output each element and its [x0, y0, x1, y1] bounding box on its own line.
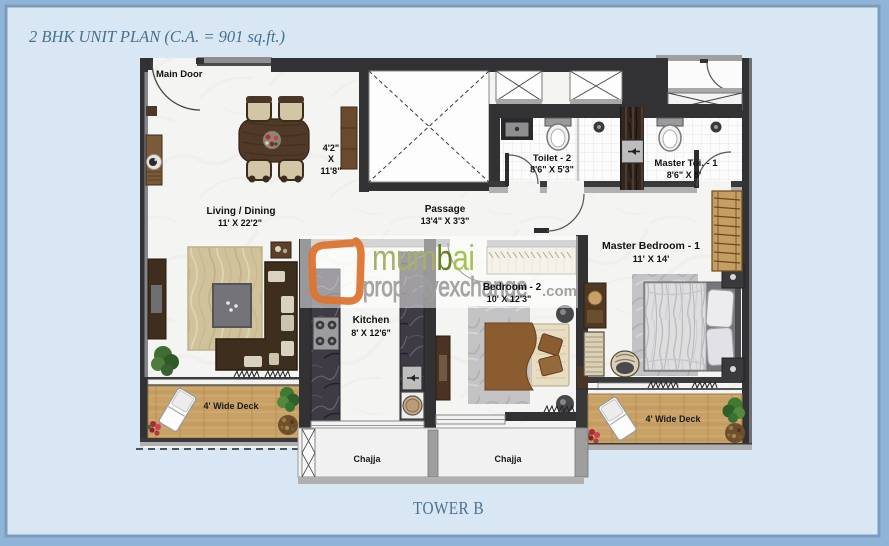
svg-text:4'2": 4'2": [323, 143, 339, 153]
svg-text:Kitchen: Kitchen: [353, 315, 390, 326]
svg-text:Passage: Passage: [425, 204, 466, 215]
svg-text:11'8": 11'8": [321, 166, 342, 176]
svg-text:8'6" X 5'3": 8'6" X 5'3": [530, 165, 574, 175]
svg-text:13'4" X 3'3": 13'4" X 3'3": [421, 216, 470, 226]
svg-text:4' Wide Deck: 4' Wide Deck: [645, 414, 701, 424]
svg-text:Living / Dining: Living / Dining: [207, 206, 276, 217]
svg-text:.com: .com: [542, 283, 577, 300]
svg-text:Master Toi. - 1: Master Toi. - 1: [654, 158, 718, 169]
svg-text:Chajja: Chajja: [494, 454, 522, 464]
svg-text:TOWER B: TOWER B: [413, 498, 484, 518]
svg-text:2 BHK UNIT PLAN (C.A. = 901 sq: 2 BHK UNIT PLAN (C.A. = 901 sq.ft.): [29, 27, 285, 46]
svg-text:Toilet - 2: Toilet - 2: [533, 153, 571, 164]
svg-text:Master Bedroom - 1: Master Bedroom - 1: [602, 240, 700, 252]
svg-text:Main Door: Main Door: [156, 69, 203, 80]
svg-text:11' X 14': 11' X 14': [633, 254, 670, 265]
svg-text:X: X: [328, 154, 334, 164]
svg-text:11' X 22'2": 11' X 22'2": [218, 218, 262, 228]
svg-text:8' X 12'6": 8' X 12'6": [351, 328, 391, 338]
svg-text:8'6" X 5': 8'6" X 5': [667, 170, 702, 180]
svg-text:4' Wide Deck: 4' Wide Deck: [203, 401, 259, 411]
svg-text:10' X 12'3": 10' X 12'3": [487, 294, 532, 304]
svg-text:Bedroom - 2: Bedroom - 2: [483, 282, 542, 293]
svg-text:Chajja: Chajja: [353, 454, 381, 464]
